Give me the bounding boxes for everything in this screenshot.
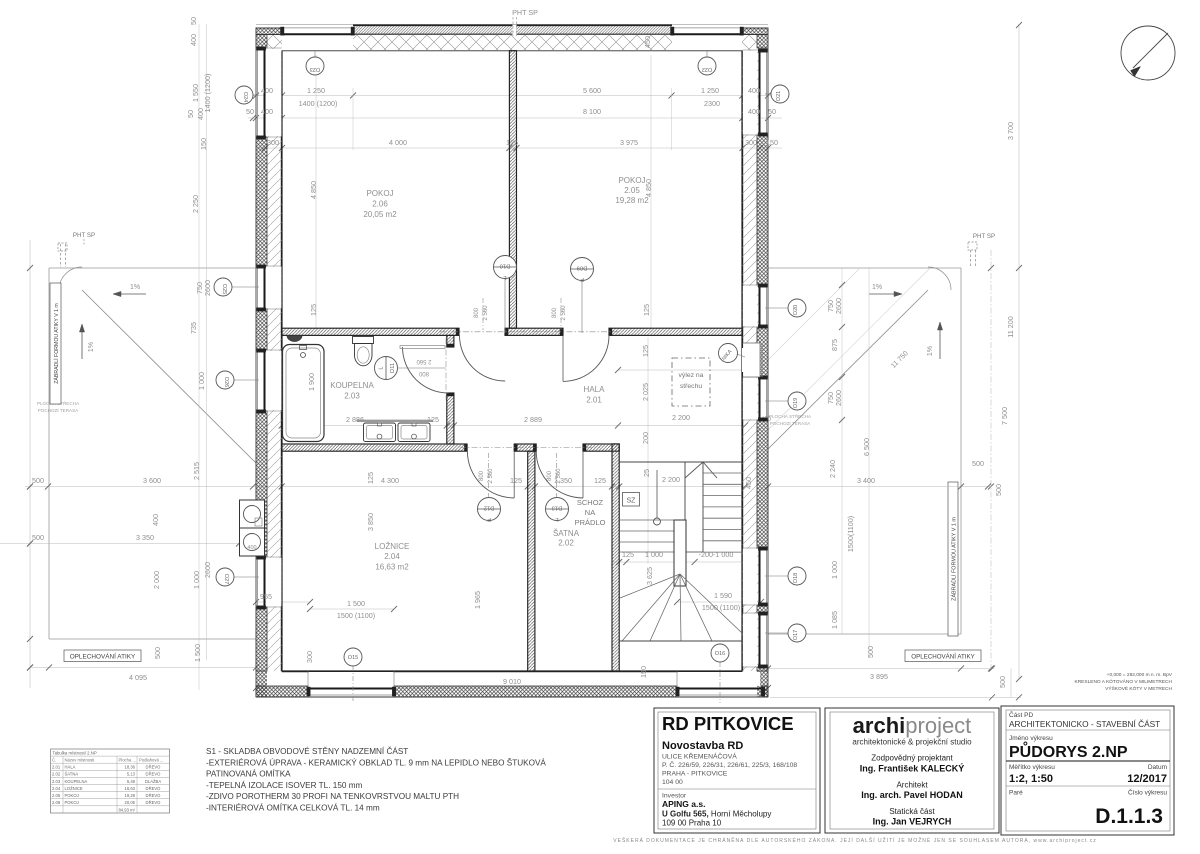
svg-text:400: 400 [261,86,273,95]
svg-text:ZÁBRADLÍ FORMOU ATIKY V 1 m: ZÁBRADLÍ FORMOU ATIKY V 1 m [53,303,60,384]
svg-text:2.02: 2.02 [52,772,61,777]
svg-text:2600: 2600 [834,390,843,406]
svg-text:1 550: 1 550 [191,84,200,102]
svg-text:D11: D11 [390,363,396,373]
svg-text:104 00: 104 00 [662,779,683,786]
svg-text:1%: 1% [130,284,140,291]
svg-text:2600: 2600 [203,562,212,578]
svg-text:2 560: 2 560 [488,468,494,484]
svg-text:50: 50 [186,110,195,118]
svg-text:1%: 1% [872,284,882,291]
svg-text:800: 800 [552,307,558,318]
svg-text:POKOJ: POKOJ [366,189,393,198]
svg-text:200: 200 [641,432,650,444]
svg-text:střechu: střechu [680,383,703,390]
svg-text:150: 150 [639,666,648,678]
svg-text:2 889: 2 889 [524,415,542,424]
svg-text:1 000: 1 000 [830,561,839,579]
svg-text:Plocha ...: Plocha ... [119,758,136,763]
svg-text:VEŠKERÁ DOKUMENTACE JE CHRÁNĚN: VEŠKERÁ DOKUMENTACE JE CHRÁNĚNA DLE AUTO… [613,836,1096,844]
svg-text:800: 800 [418,370,429,376]
svg-text:7 500: 7 500 [1000,407,1009,425]
svg-text:DŘEVO: DŘEVO [146,786,162,791]
svg-text:125: 125 [427,415,439,424]
svg-text:400: 400 [196,108,205,120]
svg-text:19,28: 19,28 [125,793,136,798]
svg-text:O15: O15 [348,655,358,661]
svg-text:SZ: SZ [627,498,637,505]
svg-text:500: 500 [32,476,44,485]
svg-text:DŘEVO: DŘEVO [146,800,162,805]
svg-text:1 085: 1 085 [830,611,839,629]
svg-text:9 010: 9 010 [503,677,521,686]
svg-text:DLAŽBA: DLAŽBA [145,779,161,784]
svg-text:O20: O20 [793,305,799,315]
svg-text:2.05: 2.05 [52,793,61,798]
svg-text:4 850: 4 850 [644,179,653,197]
svg-text:D13: D13 [552,505,563,511]
svg-text:Ing. František KALECKÝ: Ing. František KALECKÝ [860,763,965,774]
svg-text:1 000: 1 000 [197,372,206,390]
svg-text:3 625: 3 625 [645,567,654,585]
svg-text:400: 400 [748,86,760,95]
svg-text:O21: O21 [776,91,782,101]
svg-text:HALA: HALA [65,765,76,770]
svg-text:2 200: 2 200 [662,475,680,484]
svg-text:50: 50 [189,17,198,25]
svg-text:3 350: 3 350 [136,533,154,542]
svg-text:2 515: 2 515 [192,462,201,480]
svg-text:20,05 m2: 20,05 m2 [363,210,397,219]
svg-text:25: 25 [642,469,651,477]
svg-text:2 025: 2 025 [641,383,650,401]
svg-text:Novostavba RD: Novostavba RD [662,740,743,752]
svg-text:16,63 m2: 16,63 m2 [375,563,409,572]
svg-text:1400 (1200): 1400 (1200) [203,74,212,113]
svg-text:2 560: 2 560 [416,358,432,364]
svg-text:S1 - SKLADBA OBVODOVÉ STĚNY NA: S1 - SKLADBA OBVODOVÉ STĚNY NADZEMNÍ ČÁS… [206,746,408,756]
svg-text:O23: O23 [310,66,320,72]
svg-text:DŘEVO: DŘEVO [146,765,162,770]
svg-text:ŠATNA: ŠATNA [65,772,79,777]
svg-text:2 250: 2 250 [191,195,200,213]
svg-text:800: 800 [547,470,553,481]
svg-text:400: 400 [261,107,273,116]
svg-text:1 250: 1 250 [307,86,325,95]
svg-text:PHT SP: PHT SP [512,8,538,17]
svg-text:6 500: 6 500 [862,438,871,456]
svg-text:12/2017: 12/2017 [1127,773,1167,785]
svg-text:150: 150 [766,138,778,147]
svg-text:5,48: 5,48 [127,779,136,784]
svg-text:1 590: 1 590 [714,591,732,600]
svg-text:POKOJ: POKOJ [65,793,79,798]
svg-text:1 900: 1 900 [307,373,316,391]
svg-text:1 250: 1 250 [701,86,719,95]
svg-text:16,63: 16,63 [125,786,136,791]
svg-text:2.03: 2.03 [344,392,360,401]
svg-text:P: P [487,516,491,522]
svg-text:5 600: 5 600 [583,86,601,95]
svg-text:1400 (1200): 1400 (1200) [299,99,338,108]
svg-text:D09: D09 [577,265,588,271]
svg-text:POKOJ: POKOJ [618,176,645,185]
svg-text:2300: 2300 [704,99,720,108]
svg-text:APING a.s.: APING a.s. [662,799,705,809]
svg-text:ŠATNA: ŠATNA [553,529,580,538]
svg-text:P. Č. 226/59, 226/31, 226/61,: P. Č. 226/59, 226/31, 226/61, 225/3, 168… [662,760,797,769]
svg-text:400: 400 [247,545,256,551]
svg-text:D10: D10 [500,263,511,269]
svg-text:1 965: 1 965 [473,591,482,609]
svg-text:4 850: 4 850 [309,181,318,199]
svg-text:800: 800 [479,470,485,481]
svg-text:400: 400 [151,514,160,526]
svg-text:+0,000 = 282,000 m n. m. BpV: +0,000 = 282,000 m n. m. BpV [1107,672,1173,678]
svg-text:O16: O16 [715,651,725,657]
svg-text:8 100: 8 100 [583,107,601,116]
svg-text:PLOCHÁ STŘECHA: PLOCHÁ STŘECHA [769,412,812,419]
svg-text:Datum: Datum [1148,764,1167,771]
svg-text:2 240: 2 240 [828,460,837,478]
svg-text:1:2, 1:50: 1:2, 1:50 [1009,773,1053,785]
svg-text:ARCHITEKTONICKO - STAVEBNÍ ČÁS: ARCHITEKTONICKO - STAVEBNÍ ČÁST [1009,719,1160,729]
svg-text:3 850: 3 850 [366,513,375,531]
svg-text:800: 800 [474,307,480,318]
svg-text:3 975: 3 975 [620,138,638,147]
svg-text:Statická část: Statická část [889,807,935,816]
svg-text:400: 400 [189,34,198,46]
svg-text:2.02: 2.02 [558,539,574,548]
svg-text:ULICE KŘEMENÁČOVÁ: ULICE KŘEMENÁČOVÁ [662,752,737,761]
svg-text:D12: D12 [484,505,495,511]
svg-text:Architekt: Architekt [896,781,928,790]
svg-text:LOŽNICE: LOŽNICE [65,786,83,791]
svg-text:RD PITKOVICE: RD PITKOVICE [662,713,794,734]
svg-text:125: 125 [366,472,375,484]
svg-text:2 000: 2 000 [152,571,161,589]
svg-text:1 000: 1 000 [645,550,663,559]
svg-text:125: 125 [642,304,651,316]
svg-text:PRÁDLO: PRÁDLO [575,518,606,527]
svg-text:NA: NA [585,508,595,517]
svg-text:archiproject: archiproject [853,713,972,738]
svg-text:11 200: 11 200 [1006,316,1015,337]
svg-text:O24: O24 [242,92,248,102]
svg-text:Podlahová ...: Podlahová ... [139,758,163,763]
svg-text:POCHOZÍ TERASA: POCHOZÍ TERASA [38,407,79,413]
svg-text:2 560: 2 560 [483,305,489,321]
svg-text:875: 875 [830,339,839,351]
svg-text:DŘEVO: DŘEVO [146,772,162,777]
svg-text:1 350: 1 350 [554,476,572,485]
svg-text:O25: O25 [221,284,227,294]
svg-text:2.01: 2.01 [586,396,602,405]
svg-text:2 200: 2 200 [672,413,690,422]
svg-text:O27: O27 [223,574,229,584]
svg-text:O26: O26 [223,377,229,387]
svg-text:2.05: 2.05 [624,186,640,195]
svg-text:3 600: 3 600 [143,476,161,485]
svg-text:O18: O18 [793,573,799,583]
svg-text:-EXTERIÉROVÁ ÚPRAVA - KERAMICK: -EXTERIÉROVÁ ÚPRAVA - KERAMICKÝ OBKLAD T… [206,757,546,767]
svg-text:KOUPELNA: KOUPELNA [330,381,374,390]
svg-text:18,36: 18,36 [125,765,136,770]
svg-text:125: 125 [594,476,606,485]
svg-text:-INTERIÉROVÁ OMÍTKA CELKOVÁ TL: -INTERIÉROVÁ OMÍTKA CELKOVÁ TL. 14 mm [206,803,380,813]
svg-text:O22: O22 [702,66,712,72]
svg-text:POKOJ: POKOJ [65,800,79,805]
svg-text:125: 125 [510,476,522,485]
svg-text:POCHOZÍ TERASA: POCHOZÍ TERASA [770,420,811,426]
svg-text:1 000: 1 000 [192,571,201,589]
svg-text:-200-1 000: -200-1 000 [699,550,734,559]
svg-text:O17: O17 [793,630,799,640]
svg-text:ZÁBRADLÍ FORMOU ATIKY V 1 m: ZÁBRADLÍ FORMOU ATIKY V 1 m [951,517,958,601]
svg-text:2600: 2600 [203,280,212,296]
svg-text:1%: 1% [88,342,95,352]
svg-text:1500 (1100): 1500 (1100) [337,611,375,620]
svg-text:955: 955 [260,592,272,601]
svg-text:735: 735 [189,322,198,334]
svg-text:125: 125 [309,304,318,316]
svg-text:OPLECHOVÁNÍ ATIKY: OPLECHOVÁNÍ ATIKY [911,654,975,661]
svg-text:150: 150 [199,138,208,150]
svg-text:300: 300 [745,138,757,147]
svg-text:1500(1100): 1500(1100) [846,516,855,552]
svg-text:125: 125 [622,550,634,559]
svg-text:2.04: 2.04 [384,552,400,561]
svg-text:1 500: 1 500 [193,644,202,662]
svg-text:OPLECHOVÁNÍ ATIKY: OPLECHOVÁNÍ ATIKY [70,652,136,661]
svg-text:LOŽNICE: LOŽNICE [375,542,410,551]
svg-text:KOUPELNA: KOUPELNA [65,779,88,784]
svg-text:2 560: 2 560 [561,305,567,321]
svg-text:4 000: 4 000 [389,138,407,147]
svg-text:VÝŠKOVÉ KÓTY V METRECH: VÝŠKOVÉ KÓTY V METRECH [1105,685,1172,692]
svg-text:2.06: 2.06 [372,200,388,209]
svg-text:300: 300 [305,651,314,663]
svg-text:500: 500 [32,533,44,542]
svg-text:-TEPELNÁ IZOLACE ISOVER TL. 15: -TEPELNÁ IZOLACE ISOVER TL. 150 mm [206,780,363,790]
svg-text:DŘEVO: DŘEVO [146,793,162,798]
svg-text:D.1.1.3: D.1.1.3 [1095,805,1163,828]
svg-text:500: 500 [998,676,1007,688]
svg-text:50: 50 [768,107,776,116]
svg-text:U Golfu 565, Horní Měcholupy: U Golfu 565, Horní Měcholupy [662,810,771,819]
svg-text:3 400: 3 400 [857,476,875,485]
svg-text:PHT SP: PHT SP [73,232,95,239]
svg-text:3 700: 3 700 [1006,122,1015,140]
svg-text:50: 50 [246,107,254,116]
svg-text:-ZDIVO POROTHERM 30 PROFI NA T: -ZDIVO POROTHERM 30 PROFI NA TENKOVRSTVO… [206,792,459,801]
svg-text:PRAHA - PITKOVICE: PRAHA - PITKOVICE [662,771,728,778]
svg-text:HALA: HALA [584,385,606,394]
svg-text:Měřítko výkresu: Měřítko výkresu [1009,764,1055,771]
svg-text:450: 450 [744,477,753,489]
svg-text:PŮDORYS 2.NP: PŮDORYS 2.NP [1009,741,1128,761]
svg-text:125: 125 [641,345,650,357]
svg-text:architektonické & projekční st: architektonické & projekční studio [852,738,972,747]
svg-text:500: 500 [153,647,162,659]
svg-text:Číslo výkresu: Číslo výkresu [1128,788,1167,797]
svg-text:500: 500 [972,459,984,468]
svg-text:4 300: 4 300 [381,476,399,485]
svg-text:500: 500 [866,646,875,658]
svg-text:2600: 2600 [834,298,843,314]
svg-text:300: 300 [267,138,279,147]
svg-text:20,05: 20,05 [125,800,136,805]
svg-text:2.01: 2.01 [52,765,61,770]
svg-text:Název místnosti: Název místnosti [65,758,95,763]
svg-text:3 895: 3 895 [870,672,888,681]
svg-text:450: 450 [643,36,652,48]
svg-text:1%: 1% [927,346,934,356]
svg-text:109 00 Praha 10: 109 00 Praha 10 [662,819,722,828]
svg-text:výlez na: výlez na [679,372,704,379]
svg-text:PHT SP: PHT SP [973,233,995,240]
svg-text:O19: O19 [793,398,799,408]
svg-text:1500 (1100): 1500 (1100) [702,603,740,612]
svg-text:KRESLENO A KÓTOVÁNO V MILIMETR: KRESLENO A KÓTOVÁNO V MILIMETRECH [1075,678,1173,685]
svg-text:Ing. Jan VEJRYCH: Ing. Jan VEJRYCH [873,817,952,827]
svg-text:500: 500 [994,484,1003,496]
svg-text:P: P [580,276,584,282]
svg-text:5,13: 5,13 [127,772,136,777]
svg-text:SCHOZ: SCHOZ [577,498,604,507]
svg-text:Ing. arch. Pavel HODAN: Ing. arch. Pavel HODAN [861,790,963,800]
svg-text:Tabulka místností 2.NP: Tabulka místností 2.NP [53,751,97,756]
svg-text:125: 125 [506,138,518,147]
svg-text:Zodpovědný projektant: Zodpovědný projektant [871,754,953,763]
svg-text:Č.: Č. [52,758,56,763]
svg-text:1 500: 1 500 [347,599,365,608]
svg-text:Paré: Paré [1009,790,1023,797]
svg-text:84,93 m²: 84,93 m² [118,807,135,812]
svg-text:4 095: 4 095 [129,673,147,682]
svg-text:2 886: 2 886 [346,415,364,424]
svg-text:2.04: 2.04 [52,786,61,791]
svg-text:Část PD: Část PD [1009,710,1034,719]
svg-text:Jméno výkresu: Jméno výkresu [1009,735,1053,742]
svg-text:PATINOVANÁ OMÍTKA: PATINOVANÁ OMÍTKA [206,769,291,779]
svg-text:2.03: 2.03 [52,779,61,784]
svg-text:400: 400 [748,107,760,116]
svg-text:2.06: 2.06 [52,800,61,805]
